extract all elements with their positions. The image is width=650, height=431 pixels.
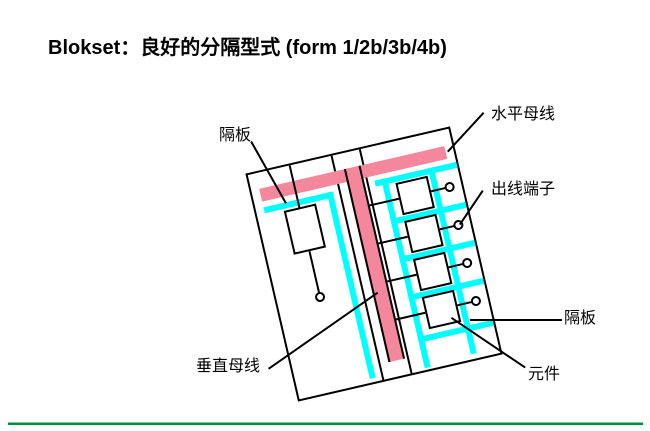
feeder-4-outgoing-terminal: [470, 295, 482, 307]
label-component: 元件: [528, 366, 560, 384]
label-outgoing-terminal: 出线端子: [491, 181, 555, 199]
label-horizontal-busbar: 水平母线: [491, 106, 555, 124]
cabinet-drawing: [245, 126, 502, 401]
incomer-component-box: [284, 204, 326, 255]
vertical-busbar: [344, 166, 405, 363]
label-partition-right: 隔板: [564, 310, 596, 328]
cabinet-outline: [245, 126, 502, 401]
incomer-bottom-wire: [308, 251, 320, 293]
slide: { "slide": { "title": "Blokset：良好的分隔型式 (…: [0, 0, 650, 431]
label-vertical-busbar: 垂直母线: [196, 358, 260, 376]
leader-horizontal-busbar: [447, 112, 484, 152]
incomer-terminal: [314, 291, 326, 303]
label-partition-left: 隔板: [219, 127, 251, 145]
feeder-3-outgoing-terminal: [461, 257, 473, 269]
feeder-1-busbar-wire: [369, 198, 399, 207]
feeder-2-busbar-wire: [378, 236, 408, 245]
feeder-3-busbar-wire: [387, 274, 417, 283]
feeder-4-busbar-wire: [396, 312, 426, 321]
leader-partition-right: [470, 319, 562, 321]
feeder-4-component-box: [422, 290, 462, 330]
footer-rule: [8, 422, 643, 425]
feeder-1-outgoing-terminal: [444, 181, 456, 193]
slide-title: Blokset：良好的分隔型式 (form 1/2b/3b/4b): [48, 37, 447, 59]
